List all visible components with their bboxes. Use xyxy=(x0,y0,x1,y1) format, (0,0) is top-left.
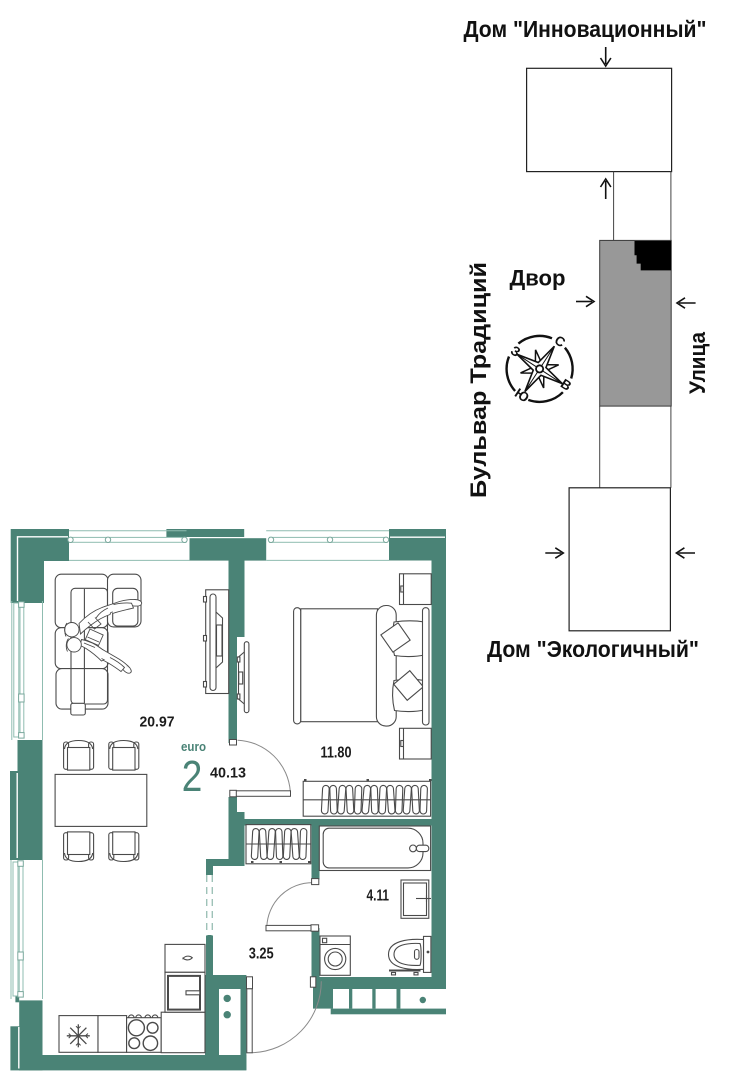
svg-text:4.11: 4.11 xyxy=(367,888,390,905)
svg-text:40.13: 40.13 xyxy=(210,765,246,782)
svg-text:20.97: 20.97 xyxy=(140,714,175,731)
svg-text:Дом "Инновационный": Дом "Инновационный" xyxy=(464,16,707,42)
svg-text:3.25: 3.25 xyxy=(249,946,274,963)
svg-text:В: В xyxy=(558,376,575,394)
svg-text:Бульвар Традиций: Бульвар Традиций xyxy=(466,262,491,498)
svg-text:Улица: Улица xyxy=(685,331,710,394)
svg-text:Двор: Двор xyxy=(510,266,566,291)
svg-text:2: 2 xyxy=(182,751,203,801)
svg-text:Дом "Экологичный": Дом "Экологичный" xyxy=(487,636,699,662)
svg-text:11.80: 11.80 xyxy=(321,744,352,761)
